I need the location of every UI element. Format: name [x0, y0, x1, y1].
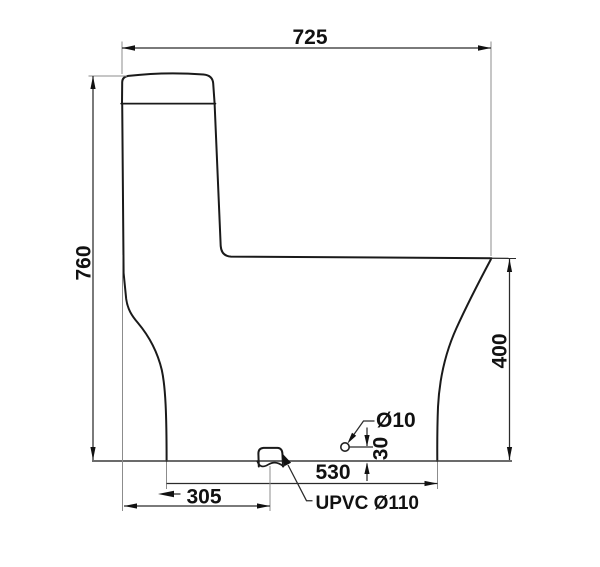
dim-305-arrow-right	[257, 503, 270, 508]
dim-30-arrow-up	[364, 463, 369, 475]
dim-outlet-offset: 305	[123, 255, 271, 511]
outlet-label: UPVC Ø110	[316, 493, 420, 514]
tank-right-and-seat-outline	[215, 104, 492, 259]
dim-bowl-height: 400	[489, 259, 513, 460]
dim-305-arrow-left	[124, 503, 137, 508]
hole-leader-arrow	[347, 433, 356, 444]
tank-left-and-pedestal-outline	[122, 104, 166, 462]
hole-diameter-label: Ø10	[376, 409, 416, 432]
dim-530-arrow-right	[425, 481, 438, 486]
dim-overall-height: 760	[73, 76, 128, 460]
outlet-leader-line	[288, 465, 313, 501]
toilet-outline	[92, 73, 516, 466]
dim-305-label: 305	[186, 486, 221, 509]
dim-400-arrow-top	[507, 259, 512, 272]
dim-760-arrow-top	[90, 76, 95, 89]
bowl-back-outline	[437, 260, 491, 462]
technical-drawing-canvas: 725 760 400 530	[0, 0, 600, 567]
dim-overall-width: 725	[122, 26, 491, 256]
toilet-dimension-drawing: 725 760 400 530	[0, 0, 600, 567]
dim-725-label: 725	[292, 26, 327, 49]
dim-400-label: 400	[489, 333, 512, 368]
hole-leader-line	[354, 421, 375, 434]
dim-30-label: 30	[370, 437, 393, 460]
dim-760-arrow-bottom	[90, 447, 95, 460]
dim-530-arrow-left	[158, 491, 174, 497]
dim-400-arrow-bottom	[507, 447, 512, 460]
dim-725-arrow-right	[478, 45, 491, 50]
dim-725-arrow-left	[122, 45, 135, 50]
fixing-hole	[341, 443, 349, 451]
outlet-break-wave	[257, 461, 283, 466]
dim-530-label: 530	[315, 461, 350, 484]
dim-760-label: 760	[73, 245, 96, 280]
tank-lid-outline	[122, 73, 215, 103]
